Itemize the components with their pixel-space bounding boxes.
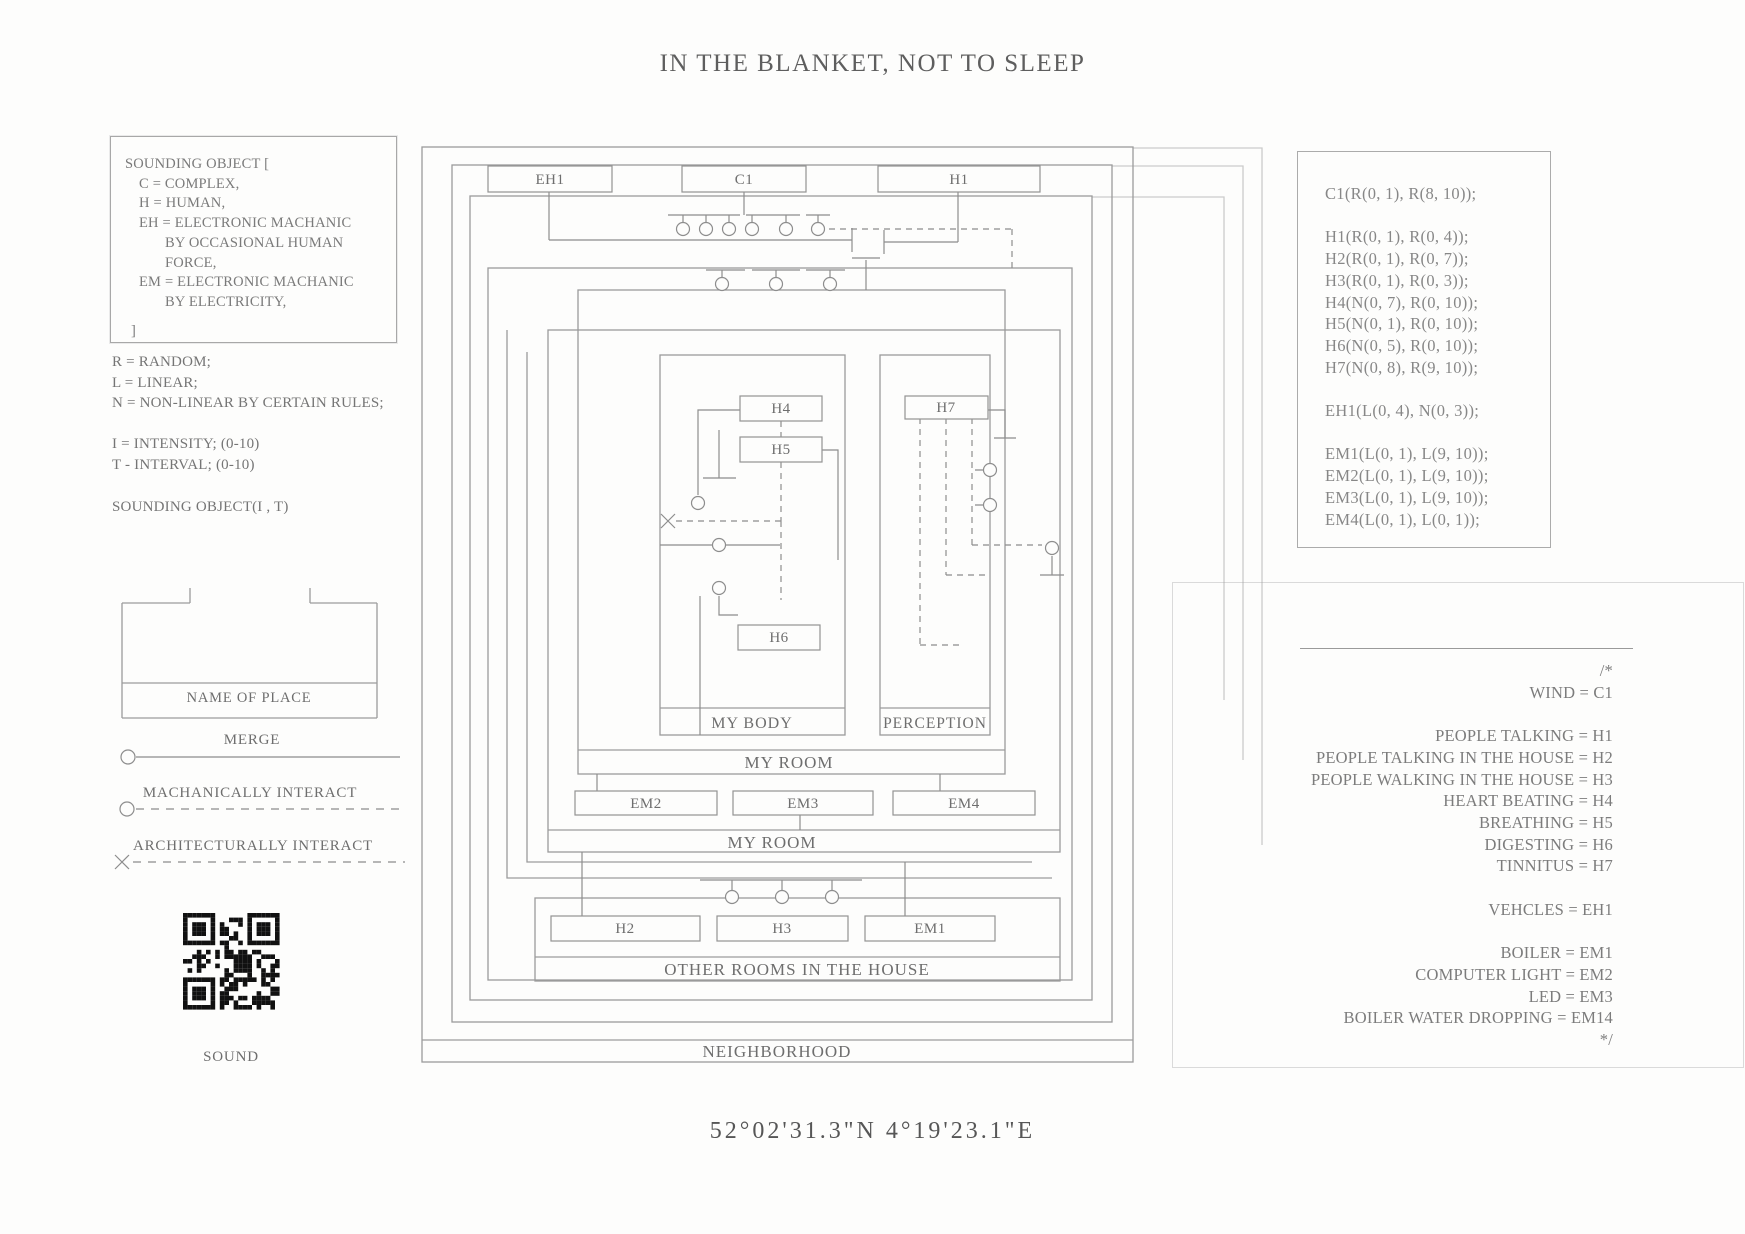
label-my-body: MY BODY xyxy=(711,715,793,732)
svg-text:H5: H5 xyxy=(771,442,790,458)
merge-symbol xyxy=(121,750,400,764)
mechanical-connectors xyxy=(676,229,1042,645)
top-right-extension-walls xyxy=(1092,148,1262,845)
label-machanically-interact: MACHANICALLY INTERACT xyxy=(143,785,357,801)
node-em1: EM1 xyxy=(865,916,995,941)
label-other-rooms: OTHER ROOMS IN THE HOUSE xyxy=(664,960,929,979)
node-h7: H7 xyxy=(905,396,988,419)
room-labels: MY BODY PERCEPTION MY ROOM MY ROOM OTHER… xyxy=(664,715,987,1061)
label-perception: PERCEPTION xyxy=(883,715,987,732)
node-h3: H3 xyxy=(717,916,848,941)
svg-text:H6: H6 xyxy=(769,630,788,646)
label-neighborhood: NEIGHBORHOOD xyxy=(703,1042,852,1061)
label-my-room-outer: MY ROOM xyxy=(727,833,816,852)
label-my-room-inner: MY ROOM xyxy=(744,753,833,772)
machanically-interact-symbol xyxy=(120,802,405,816)
svg-text:H1: H1 xyxy=(949,172,968,188)
svg-text:H7: H7 xyxy=(936,400,955,416)
svg-text:EM2: EM2 xyxy=(630,796,662,812)
architecture-diagram: EH1 C1 H1 H4 H5 H6 xyxy=(0,0,1745,1234)
node-em4: EM4 xyxy=(893,791,1035,815)
node-h1: H1 xyxy=(878,166,1040,192)
label-architecturally-interact: ARCHITECTURALLY INTERACT xyxy=(133,838,373,854)
node-h2: H2 xyxy=(551,916,700,941)
label-merge: MERGE xyxy=(224,732,281,748)
svg-text:EM1: EM1 xyxy=(914,921,946,937)
symbol-key: NAME OF PLACE MERGE MACHANICALLY INTERAC… xyxy=(115,588,405,1065)
svg-text:EM3: EM3 xyxy=(787,796,819,812)
svg-text:EM4: EM4 xyxy=(948,796,980,812)
node-h5: H5 xyxy=(740,437,822,462)
svg-text:H2: H2 xyxy=(615,921,634,937)
score-sheet: IN THE BLANKET, NOT TO SLEEP SOUNDING OB… xyxy=(0,0,1745,1234)
svg-text:H3: H3 xyxy=(772,921,791,937)
sounding-object-nodes: EH1 C1 H1 H4 H5 H6 xyxy=(488,166,1040,941)
node-c1: C1 xyxy=(682,166,806,192)
svg-text:H4: H4 xyxy=(771,401,790,417)
architecturally-interact-symbol xyxy=(115,855,405,869)
node-h6: H6 xyxy=(738,625,820,650)
svg-text:EH1: EH1 xyxy=(536,172,565,188)
label-name-of-place: NAME OF PLACE xyxy=(187,690,312,706)
node-eh1: EH1 xyxy=(488,166,612,192)
architectural-x-mark xyxy=(661,514,675,528)
qr-caption: SOUND xyxy=(203,1049,259,1065)
node-em3: EM3 xyxy=(733,791,873,815)
node-h4: H4 xyxy=(740,396,822,421)
qr-code xyxy=(183,913,280,1010)
node-em2: EM2 xyxy=(575,791,717,815)
svg-text:C1: C1 xyxy=(735,172,754,188)
